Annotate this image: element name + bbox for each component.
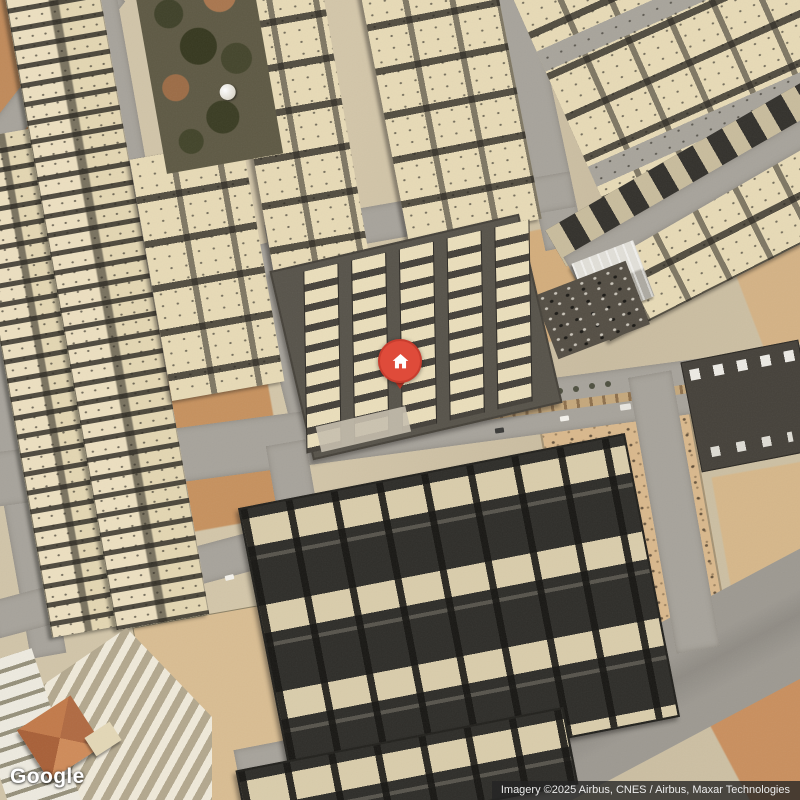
car xyxy=(225,574,235,581)
median-tree xyxy=(573,386,579,392)
truck-yard xyxy=(680,340,800,473)
imagery-attribution: Imagery ©2025 Airbus, CNES / Airbus, Max… xyxy=(492,781,800,800)
parked-trucks-row xyxy=(689,349,798,381)
home-icon xyxy=(389,350,412,373)
home-location-marker[interactable] xyxy=(378,339,422,383)
google-logo[interactable]: Google xyxy=(10,765,85,789)
median-tree xyxy=(605,381,611,387)
dome-building xyxy=(219,83,238,102)
satellite-map-canvas[interactable]: Google Imagery ©2025 Airbus, CNES / Airb… xyxy=(0,0,800,800)
parked-trucks-row xyxy=(710,432,793,458)
marker-circle xyxy=(378,339,422,383)
median-tree xyxy=(589,383,595,389)
